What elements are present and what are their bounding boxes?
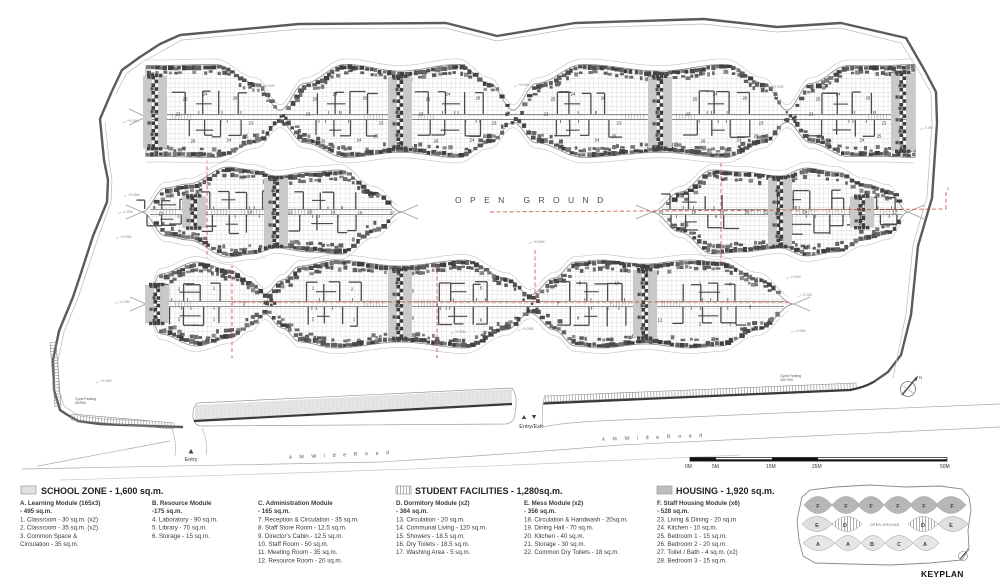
svg-text:28. Bedroom 3 - 15 sq.m.: 28. Bedroom 3 - 15 sq.m. (657, 557, 727, 564)
svg-text:22. Common Dry Toilets - 18 sq: 22. Common Dry Toilets - 18 sq.m. (524, 549, 619, 556)
svg-text:26: 26 (866, 96, 871, 101)
svg-text:E: E (815, 523, 819, 529)
svg-text:KEYPLAN: KEYPLAN (921, 569, 964, 579)
svg-text:25. Bedroom 1 - 15 sq.m.: 25. Bedroom 1 - 15 sq.m. (657, 533, 727, 540)
svg-text:- 356 sq.m.: - 356 sq.m. (524, 508, 556, 515)
svg-text:1. Classroom - 30 sq.m. (x2): 1. Classroom - 30 sq.m. (x2) (20, 516, 98, 523)
svg-text:26: 26 (476, 96, 481, 101)
svg-text:20. Kitchen - 40 sq.m.: 20. Kitchen - 40 sq.m. (524, 533, 584, 540)
svg-text:5. Library - 70 sq.m.: 5. Library - 70 sq.m. (152, 525, 207, 532)
svg-text:+0.00M: +0.00M (772, 85, 784, 89)
svg-text:+0.0M: +0.0M (802, 293, 812, 297)
svg-text:24: 24 (227, 138, 232, 143)
svg-text:OPEN GROUND: OPEN GROUND (455, 195, 612, 205)
svg-text:25: 25 (374, 134, 379, 139)
svg-text:24: 24 (860, 138, 865, 143)
svg-text:23. Living & Dining - 20 sq.m: 23. Living & Dining - 20 sq.m (657, 516, 736, 523)
svg-text:B: B (436, 354, 439, 359)
svg-text:25: 25 (313, 97, 318, 102)
svg-text:24: 24 (203, 92, 208, 97)
svg-text:F. Staff Housing Module (x6): F. Staff Housing Module (x6) (657, 500, 740, 507)
svg-text:- 495 sq.m.: - 495 sq.m. (20, 508, 52, 515)
svg-text:+0.00M: +0.00M (263, 84, 275, 88)
svg-text:- 364 sq.m.: - 364 sq.m. (396, 508, 428, 515)
svg-text:3. Common Space &: 3. Common Space & (20, 533, 78, 540)
svg-text:5M: 5M (712, 464, 719, 470)
svg-text:+0.00M: +0.00M (120, 235, 132, 239)
svg-text:-175 sq.m.: -175 sq.m. (152, 508, 183, 515)
svg-text:19. Dining Hall - 70 sq.m.: 19. Dining Hall - 70 sq.m. (524, 525, 594, 532)
svg-text:25: 25 (487, 134, 492, 139)
svg-text:24: 24 (836, 92, 841, 97)
svg-text:A: A (816, 542, 820, 548)
svg-text:15M: 15M (766, 464, 776, 470)
svg-text:- 528 sq.m.: - 528 sq.m. (657, 508, 689, 515)
svg-text:7. Reception & Circulation - 3: 7. Reception & Circulation - 35 sq.m. (258, 516, 359, 523)
svg-text:24: 24 (595, 138, 600, 143)
svg-text:2: 2 (947, 186, 950, 191)
svg-text:B: B (436, 263, 439, 268)
svg-text:24: 24 (446, 92, 451, 97)
svg-text:15. Showers - 18.5 sq.m.: 15. Showers - 18.5 sq.m. (396, 533, 465, 540)
svg-text:+0.05M: +0.05M (100, 379, 112, 383)
svg-text:24: 24 (713, 92, 718, 97)
svg-text:17. Washing Area - 5 sq.m.: 17. Washing Area - 5 sq.m. (396, 549, 471, 556)
svg-text:-0.0M: -0.0M (924, 126, 933, 130)
svg-text:21. Storage - 30 sq.m.: 21. Storage - 30 sq.m. (524, 541, 586, 548)
svg-text:6. Storage - 15 sq.m.: 6. Storage - 15 sq.m. (152, 533, 210, 540)
svg-text:26: 26 (434, 139, 439, 144)
svg-text:1: 1 (206, 159, 209, 164)
svg-text:N: N (967, 548, 970, 552)
svg-text:2. Classroom - 35 sq.m. (x2): 2. Classroom - 35 sq.m. (x2) (20, 525, 98, 532)
svg-text:18. Circulation & Handwash - 2: 18. Circulation & Handwash - 20sq.m. (524, 516, 628, 523)
svg-text:22: 22 (390, 211, 395, 216)
svg-text:25: 25 (244, 134, 249, 139)
svg-text:25: 25 (877, 134, 882, 139)
svg-text:E: E (949, 523, 953, 529)
svg-text:24: 24 (470, 138, 475, 143)
svg-text:24: 24 (737, 138, 742, 143)
svg-text:8. Staff Store Room - 12.5 sq.: 8. Staff Store Room - 12.5 sq.m. (258, 525, 347, 532)
svg-text:STUDENT FACILITIES - 1,280sq.m: STUDENT FACILITIES - 1,280sq.m. (415, 486, 563, 496)
svg-text:23: 23 (379, 121, 384, 126)
svg-text:160 PAX: 160 PAX (780, 378, 794, 382)
svg-text:12: 12 (658, 318, 663, 323)
svg-text:9. Director's Cabin - 12.5 sq.: 9. Director's Cabin - 12.5 sq.m. (258, 533, 343, 540)
svg-text:+0.05M: +0.05M (522, 327, 534, 331)
svg-text:D: D (843, 523, 847, 529)
svg-text:+0.05M: +0.05M (533, 240, 545, 244)
svg-text:26. Bedroom 2 - 20 sq.m.: 26. Bedroom 2 - 20 sq.m. (657, 541, 727, 548)
svg-text:18: 18 (692, 210, 697, 215)
svg-text:-0.05M: -0.05M (445, 155, 456, 159)
svg-text:OPEN GROUND: OPEN GROUND (870, 523, 900, 527)
svg-text:23: 23 (306, 112, 311, 117)
svg-text:E. Mess Module (x2): E. Mess Module (x2) (524, 500, 583, 507)
svg-text:19: 19 (331, 210, 336, 215)
svg-text:14. Communal Living - 120 sq.m: 14. Communal Living - 120 sq.m. (396, 525, 487, 532)
svg-text:-0.05M: -0.05M (795, 329, 806, 333)
svg-text:24: 24 (571, 92, 576, 97)
svg-text:18: 18 (358, 211, 363, 216)
svg-text:50M: 50M (940, 464, 950, 470)
svg-text:25: 25 (183, 97, 188, 102)
svg-text:26: 26 (601, 96, 606, 101)
svg-text:26: 26 (824, 139, 829, 144)
svg-text:25: 25 (612, 134, 617, 139)
svg-text:A: A (846, 542, 850, 548)
svg-text:25: 25 (693, 97, 698, 102)
svg-text:+0.05M: +0.05M (128, 193, 140, 197)
svg-text:23: 23 (617, 121, 622, 126)
svg-text:26: 26 (191, 139, 196, 144)
svg-text:HOUSING - 1,920 sq.m.: HOUSING - 1,920 sq.m. (676, 486, 775, 496)
svg-text:24: 24 (357, 138, 362, 143)
svg-text:26: 26 (743, 96, 748, 101)
svg-text:24: 24 (333, 92, 338, 97)
svg-text:23: 23 (882, 121, 887, 126)
svg-text:- 165 sq.m.: - 165 sq.m. (258, 508, 290, 515)
svg-text:23: 23 (544, 112, 549, 117)
svg-text:27. Toilet / Bath - 4 sq.m. (x: 27. Toilet / Bath - 4 sq.m. (x2) (657, 549, 738, 556)
svg-text:A. Learning Module (165x3): A. Learning Module (165x3) (20, 500, 100, 507)
svg-text:25M: 25M (812, 464, 822, 470)
svg-text:-0.05M: -0.05M (455, 330, 466, 334)
svg-text:Entry/Exit: Entry/Exit (519, 424, 543, 430)
svg-text:+0.00M: +0.00M (518, 83, 530, 87)
svg-text:-0.20M: -0.20M (119, 300, 130, 304)
svg-text:A: A (923, 542, 927, 548)
svg-text:25: 25 (816, 97, 821, 102)
svg-text:24. Kitchen - 10 sq.m.: 24. Kitchen - 10 sq.m. (657, 525, 717, 532)
svg-text:26: 26 (363, 96, 368, 101)
svg-text:B. Resource Module: B. Resource Module (152, 500, 212, 507)
svg-text:23: 23 (492, 121, 497, 126)
svg-text:22: 22 (659, 210, 664, 215)
svg-text:C. Administration Module: C. Administration Module (258, 500, 333, 507)
svg-text:+0.05M: +0.05M (127, 119, 139, 123)
svg-text:0M: 0M (685, 464, 692, 470)
svg-text:B: B (870, 542, 874, 548)
svg-text:11. Meeting Room - 35 sq.m.: 11. Meeting Room - 35 sq.m. (258, 549, 338, 556)
svg-text:10: 10 (615, 281, 620, 286)
svg-text:SCHOOL ZONE - 1,600 sq.m.: SCHOOL ZONE - 1,600 sq.m. (41, 486, 163, 496)
svg-text:A: A (231, 264, 234, 269)
svg-text:25: 25 (426, 97, 431, 102)
svg-text:Entry: Entry (185, 457, 198, 463)
svg-text:23: 23 (249, 121, 254, 126)
svg-text:-0.05M: -0.05M (790, 275, 801, 279)
svg-text:4. Laboratory - 90 sq.m.: 4. Laboratory - 90 sq.m. (152, 516, 218, 523)
svg-text:26: 26 (321, 139, 326, 144)
svg-text:10. Staff Room - 50 sq.m.: 10. Staff Room - 50 sq.m. (258, 541, 329, 548)
svg-text:Circulation - 35 sq.m.: Circulation - 35 sq.m. (20, 541, 79, 548)
svg-text:25: 25 (551, 97, 556, 102)
svg-text:23: 23 (809, 112, 814, 117)
svg-text:4 M W i d e R o a d: 4 M W i d e R o a d (289, 450, 392, 461)
svg-text:26: 26 (701, 139, 706, 144)
svg-text:A: A (231, 354, 234, 359)
svg-text:12. Resource Room - 20 sq.m.: 12. Resource Room - 20 sq.m. (258, 557, 343, 564)
svg-text:D: D (921, 523, 925, 529)
svg-text:50/PAX: 50/PAX (75, 401, 87, 405)
svg-text:25: 25 (754, 134, 759, 139)
svg-text:-0.20M: -0.20M (122, 210, 133, 214)
svg-text:D. Dormitory Module (x2): D. Dormitory Module (x2) (396, 500, 470, 507)
svg-text:26: 26 (559, 139, 564, 144)
svg-text:N: N (919, 375, 922, 380)
svg-text:23: 23 (759, 121, 764, 126)
svg-text:13. Circulation - 20 sq.m.: 13. Circulation - 20 sq.m. (396, 516, 465, 523)
svg-text:16. Dry Toilets - 18.5 sq.m.: 16. Dry Toilets - 18.5 sq.m. (396, 541, 470, 548)
svg-text:C: C (897, 542, 901, 548)
svg-text:26: 26 (233, 96, 238, 101)
